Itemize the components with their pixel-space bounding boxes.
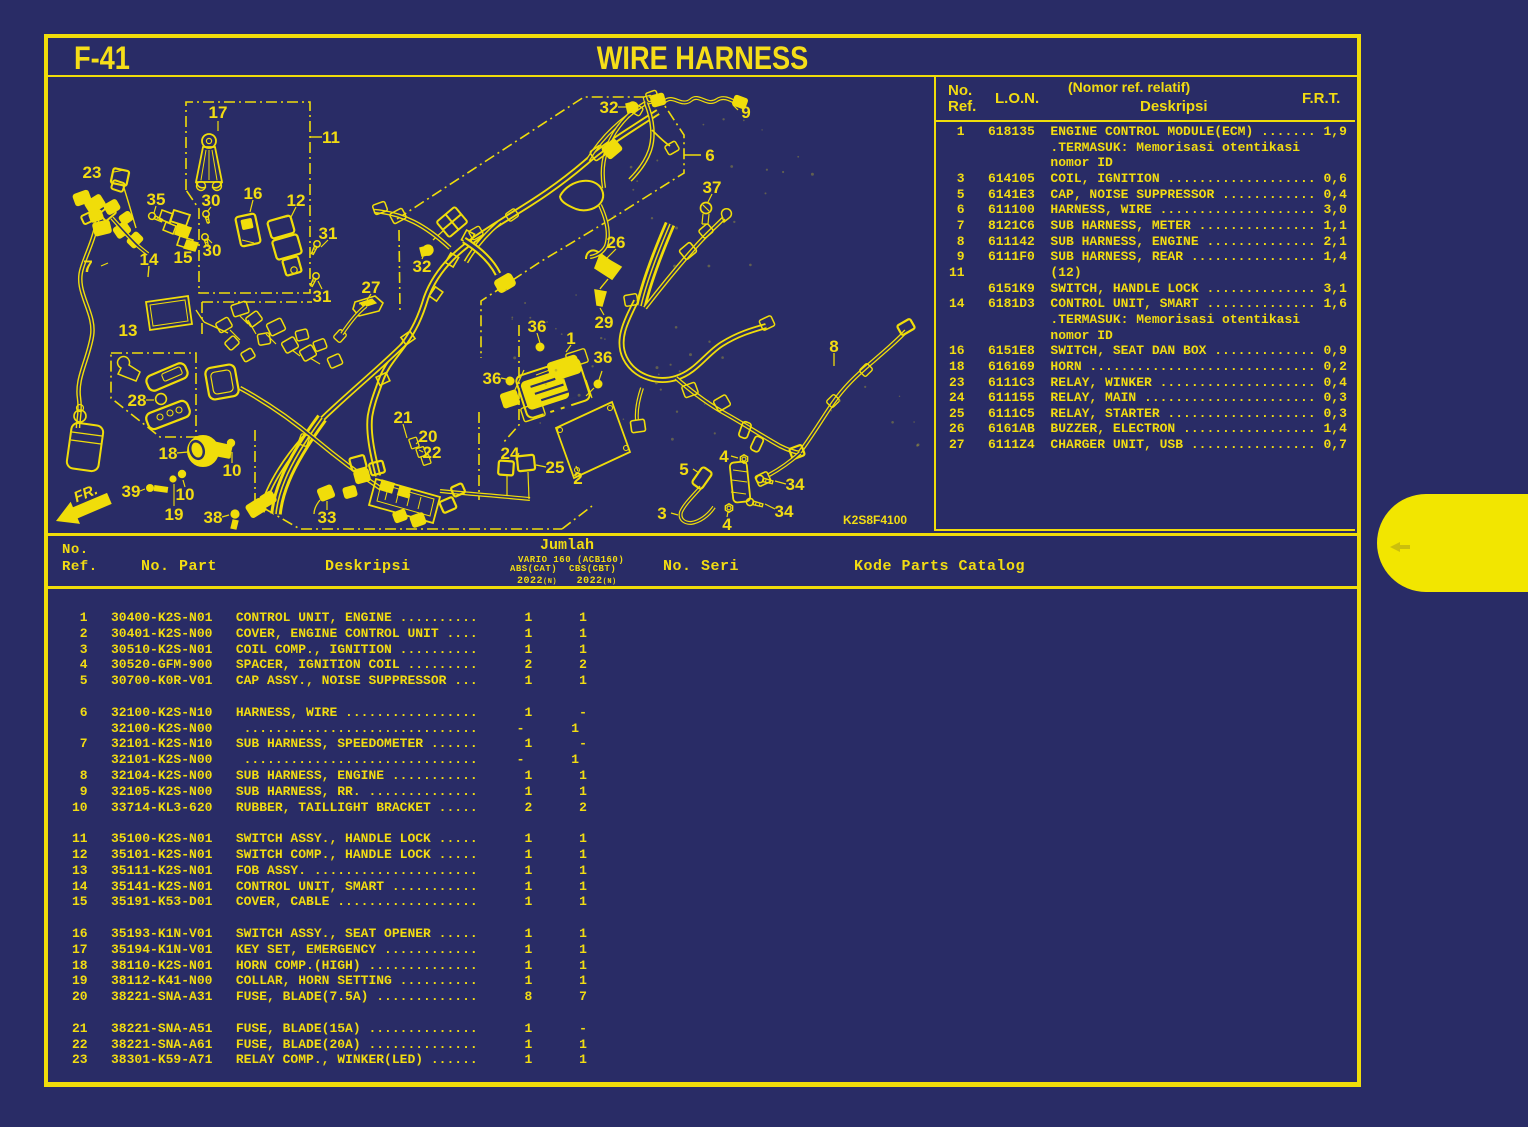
svg-text:14: 14 xyxy=(140,250,159,269)
svg-text:10: 10 xyxy=(176,485,195,504)
svg-text:17: 17 xyxy=(209,103,228,122)
svg-text:26: 26 xyxy=(607,233,626,252)
svg-text:31: 31 xyxy=(319,224,338,243)
svg-text:36: 36 xyxy=(528,317,547,336)
svg-text:2: 2 xyxy=(573,469,582,488)
svg-text:22: 22 xyxy=(423,443,442,462)
svg-text:11: 11 xyxy=(322,128,340,147)
svg-text:31: 31 xyxy=(313,287,332,306)
svg-text:10: 10 xyxy=(223,461,242,480)
svg-text:7: 7 xyxy=(83,257,92,276)
svg-text:5: 5 xyxy=(679,460,688,479)
svg-text:37: 37 xyxy=(703,178,722,197)
svg-text:12: 12 xyxy=(287,191,306,210)
svg-text:30: 30 xyxy=(202,191,221,210)
svg-text:25: 25 xyxy=(546,458,565,477)
svg-text:36: 36 xyxy=(483,369,502,388)
svg-text:4: 4 xyxy=(722,515,732,533)
svg-text:39: 39 xyxy=(122,482,141,501)
svg-text:1: 1 xyxy=(566,329,575,348)
svg-text:38: 38 xyxy=(204,508,223,527)
svg-text:34: 34 xyxy=(775,502,794,521)
svg-text:24: 24 xyxy=(501,444,520,463)
svg-text:4: 4 xyxy=(719,447,729,466)
svg-text:3: 3 xyxy=(657,504,666,523)
svg-text:15: 15 xyxy=(174,248,193,267)
svg-text:33: 33 xyxy=(318,508,337,527)
svg-text:29: 29 xyxy=(595,313,614,332)
svg-text:32: 32 xyxy=(600,98,619,117)
svg-text:28: 28 xyxy=(128,391,147,410)
svg-text:34: 34 xyxy=(786,475,805,494)
svg-text:35: 35 xyxy=(147,190,166,209)
svg-text:16: 16 xyxy=(244,184,263,203)
svg-text:27: 27 xyxy=(362,278,381,297)
svg-text:6: 6 xyxy=(705,146,714,165)
svg-text:18: 18 xyxy=(159,444,178,463)
svg-text:30: 30 xyxy=(203,241,222,260)
svg-text:13: 13 xyxy=(119,321,138,340)
svg-text:23: 23 xyxy=(83,163,102,182)
svg-text:21: 21 xyxy=(394,408,413,427)
svg-text:19: 19 xyxy=(165,505,184,524)
svg-text:32: 32 xyxy=(413,257,432,276)
svg-text:9: 9 xyxy=(741,103,750,122)
svg-text:8: 8 xyxy=(829,337,838,356)
svg-text:36: 36 xyxy=(594,348,613,367)
svg-text:K2S8F4100: K2S8F4100 xyxy=(843,513,907,527)
